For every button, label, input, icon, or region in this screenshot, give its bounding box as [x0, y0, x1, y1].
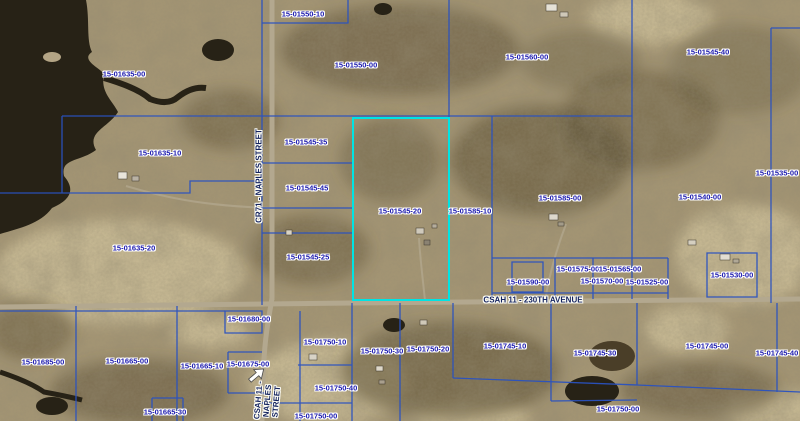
pond-southwest: [36, 397, 68, 415]
pond-south-center: [383, 318, 405, 332]
pond-southeast-lower: [565, 376, 619, 406]
aerial-imagery: [0, 0, 800, 421]
aerial-map[interactable]: 15-01635-0015-01550-1015-01550-0015-0156…: [0, 0, 800, 421]
pond-northwest: [202, 39, 234, 61]
lake-island: [43, 52, 61, 62]
pond-top-center: [374, 3, 392, 15]
